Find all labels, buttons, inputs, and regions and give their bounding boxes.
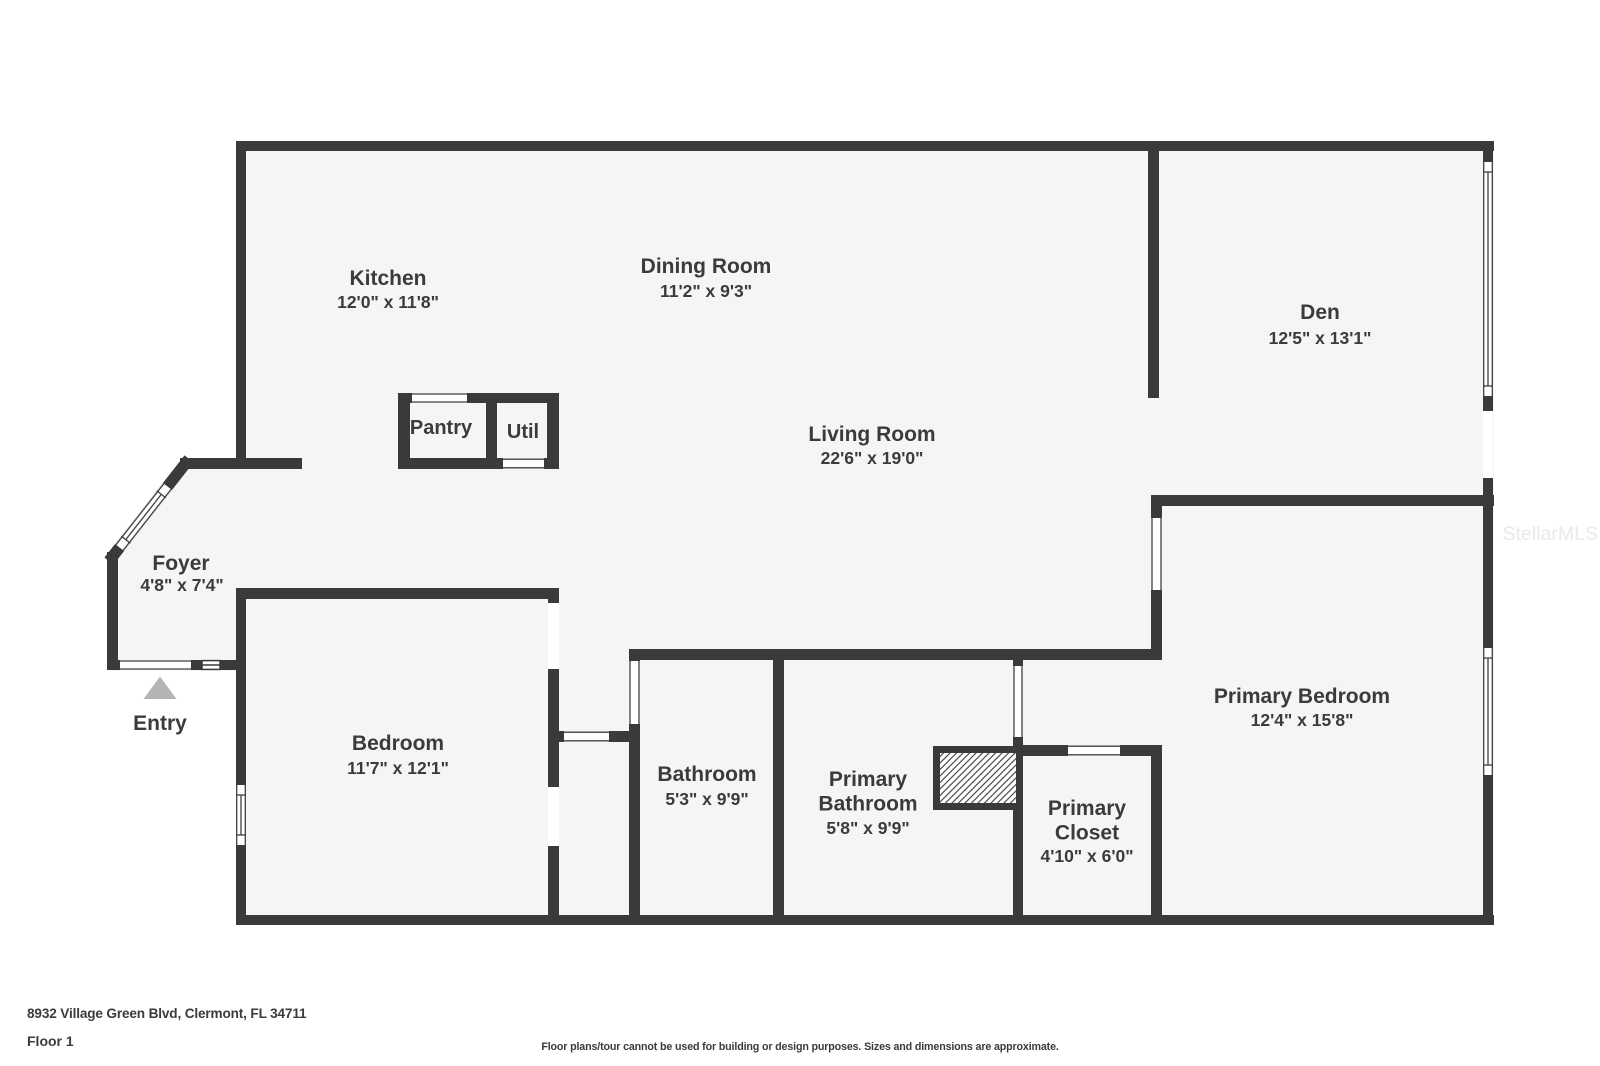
svg-text:Util: Util — [507, 421, 539, 443]
svg-text:Dining Room: Dining Room — [641, 255, 772, 278]
svg-text:Bathroom: Bathroom — [818, 793, 917, 816]
svg-text:22'6" x 19'0": 22'6" x 19'0" — [821, 448, 924, 468]
svg-text:Foyer: Foyer — [152, 552, 209, 575]
svg-text:StellarMLS: StellarMLS — [1503, 523, 1598, 545]
svg-text:Floor 1: Floor 1 — [27, 1033, 74, 1049]
svg-text:Kitchen: Kitchen — [349, 267, 426, 290]
svg-text:Bathroom: Bathroom — [657, 763, 756, 786]
svg-text:12'4" x 15'8": 12'4" x 15'8" — [1251, 710, 1354, 730]
svg-text:Living Room: Living Room — [808, 423, 935, 446]
svg-text:8932 Village Green Blvd, Clerm: 8932 Village Green Blvd, Clermont, FL 34… — [27, 1006, 307, 1021]
svg-text:Closet: Closet — [1055, 822, 1119, 845]
svg-text:Primary Bedroom: Primary Bedroom — [1214, 685, 1390, 708]
svg-text:12'5" x 13'1": 12'5" x 13'1" — [1269, 328, 1372, 348]
svg-text:5'3" x 9'9": 5'3" x 9'9" — [665, 789, 748, 809]
svg-text:11'2" x 9'3": 11'2" x 9'3" — [660, 281, 752, 301]
svg-text:Pantry: Pantry — [410, 417, 473, 439]
svg-text:Floor plans/tour cannot be use: Floor plans/tour cannot be used for buil… — [541, 1041, 1059, 1053]
svg-text:Primary: Primary — [829, 768, 908, 791]
svg-text:11'7" x 12'1": 11'7" x 12'1" — [347, 758, 449, 778]
svg-text:Den: Den — [1300, 301, 1340, 324]
svg-text:Primary: Primary — [1048, 797, 1127, 820]
svg-text:5'8" x 9'9": 5'8" x 9'9" — [826, 818, 909, 838]
svg-text:4'10" x 6'0": 4'10" x 6'0" — [1040, 846, 1133, 866]
svg-text:4'8" x 7'4": 4'8" x 7'4" — [140, 575, 223, 595]
svg-text:Entry: Entry — [133, 712, 187, 735]
svg-text:Bedroom: Bedroom — [352, 732, 444, 755]
svg-text:12'0" x 11'8": 12'0" x 11'8" — [337, 292, 439, 312]
